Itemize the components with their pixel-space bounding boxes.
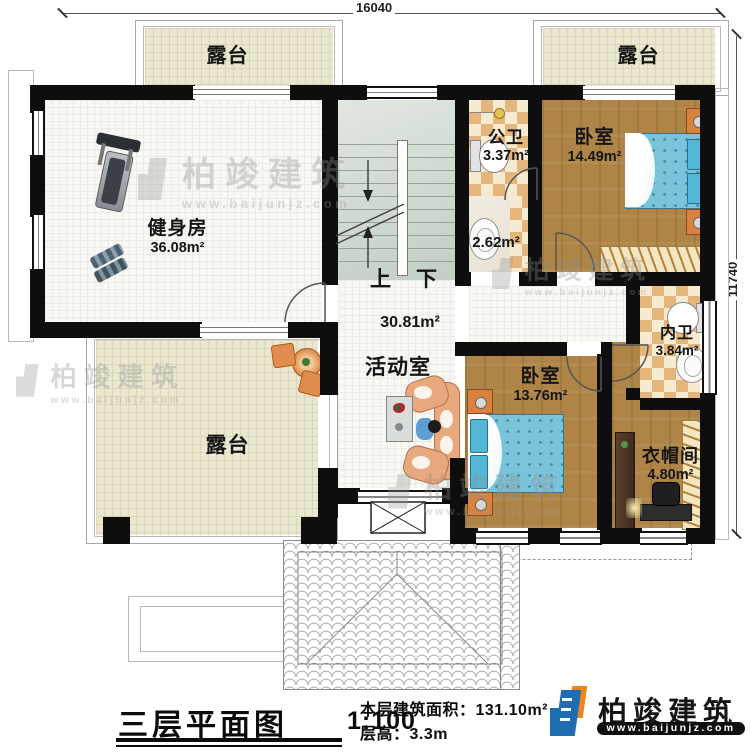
wall — [30, 85, 45, 113]
sliding-door[interactable] — [200, 324, 290, 337]
watermark-logo-icon — [388, 474, 416, 512]
wall — [455, 342, 567, 356]
wall — [600, 528, 642, 544]
room-label-cloakroom: 衣帽间 4.80m² — [628, 446, 713, 483]
floor-plan-canvas: 16040 11740 — [0, 0, 750, 753]
room-label-terrace-top-right: 露台 — [596, 45, 681, 68]
room-label-bedroom-top: 卧室14.49m² — [552, 127, 637, 166]
room-label-activity-area: 30.81m² — [365, 314, 455, 332]
wall — [626, 388, 640, 400]
room-label-public-bath: 公卫 3.37m² — [470, 128, 542, 164]
watermark: 柏竣建筑 www.baijunjz.com — [388, 474, 565, 517]
room-label-inner-bath: 内卫 3.84m² — [642, 325, 712, 359]
watermark-logo-icon — [492, 258, 517, 292]
porch-outline — [140, 606, 294, 652]
window — [32, 215, 45, 271]
tv-stand — [386, 396, 413, 442]
roof-tiles — [283, 540, 517, 690]
dimension-top-value: 16040 — [353, 0, 395, 15]
watermark-logo-icon — [16, 364, 43, 400]
window — [640, 531, 688, 545]
gym-floor — [45, 100, 322, 322]
watermark: 柏竣建筑 www.baijunjz.com — [492, 258, 652, 297]
title-underline — [116, 738, 342, 742]
desk-lamp-glow — [626, 498, 642, 518]
wall — [640, 398, 702, 410]
room-label-bedroom-mid: 卧室13.76m² — [498, 366, 583, 405]
person-head — [428, 420, 441, 433]
plant-icon — [302, 358, 310, 366]
room-label-terrace-top-left: 露台 — [185, 45, 270, 68]
room-label-terrace-bottom: 露台 — [185, 434, 270, 458]
pillow — [470, 419, 488, 453]
railing-post — [301, 517, 337, 544]
stair-handrail — [397, 140, 408, 276]
desk — [640, 504, 692, 521]
sliding-door[interactable] — [193, 86, 292, 99]
window — [560, 531, 602, 545]
wall-lamp-bulb — [494, 108, 505, 119]
wall — [30, 269, 45, 338]
watermark: 柏竣建筑 www.baijunjz.com — [16, 364, 184, 405]
nightstand — [467, 389, 493, 414]
wall — [528, 100, 542, 274]
railing-post — [103, 517, 130, 544]
wall — [30, 155, 45, 217]
wall — [700, 85, 715, 303]
right-eave-outline — [715, 88, 729, 540]
roof-tile-strip — [500, 543, 520, 690]
wall — [528, 528, 562, 544]
wall — [437, 85, 457, 100]
room-label-wash-area: 2.62m² — [466, 234, 526, 251]
wall — [30, 85, 195, 100]
railing-post — [318, 468, 338, 518]
wall-lamp — [470, 112, 496, 113]
patio-chair — [271, 343, 297, 369]
window — [32, 111, 45, 157]
wall — [30, 322, 202, 338]
floor-height-text: 层高：3.3m — [360, 720, 448, 744]
window — [476, 531, 530, 545]
stairs-down-label: 下 — [412, 268, 442, 292]
watermark-logo-icon — [138, 158, 172, 204]
dumbbells — [88, 246, 132, 282]
desk-chair — [652, 482, 680, 506]
window — [367, 86, 437, 99]
wall — [455, 100, 469, 286]
room-label-activity: 活动室 — [352, 356, 444, 380]
stairs-up-label: 上 — [366, 268, 396, 292]
title-underline — [116, 745, 342, 747]
room-label-gym: 健身房36.08m² — [130, 218, 225, 257]
watermark: 柏竣建筑 www.baijunjz.com — [138, 158, 354, 211]
wall — [597, 354, 612, 530]
railing-post — [320, 338, 338, 395]
brand-site[interactable]: www.baijunjz.com — [597, 722, 745, 735]
wall — [288, 322, 338, 338]
wall — [455, 85, 585, 100]
brand-logo-icon — [550, 684, 592, 738]
floor-area-text: 本层建筑面积：131.10m² — [360, 696, 548, 720]
sliding-door[interactable] — [583, 86, 677, 99]
